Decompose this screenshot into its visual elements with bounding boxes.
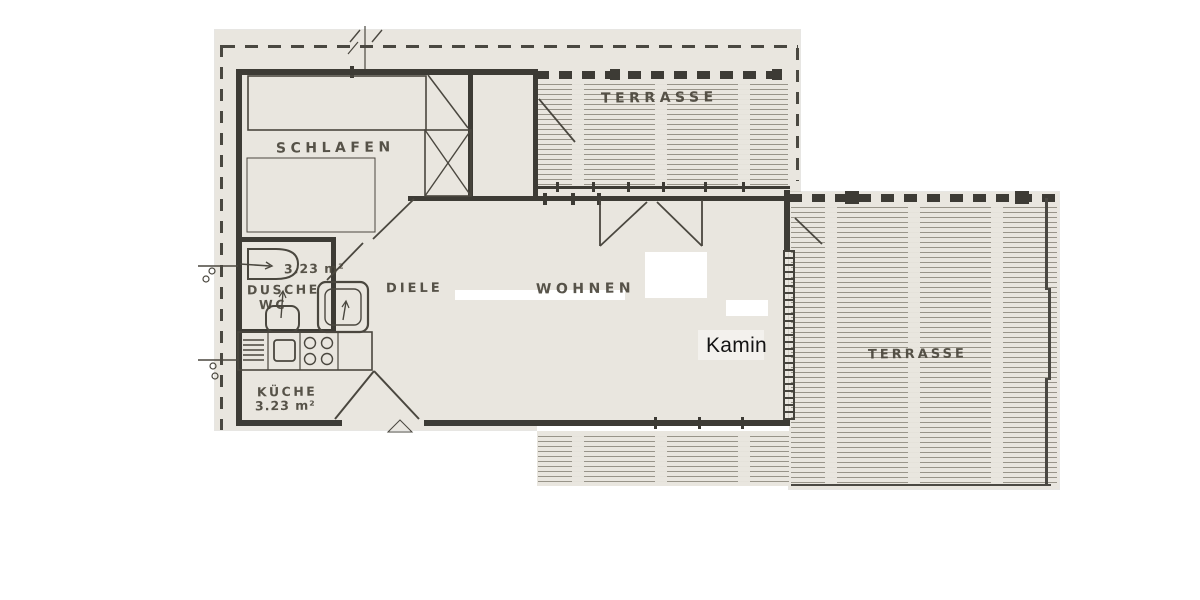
wall-window-tick [698,417,701,429]
terrace-bottom-hatch [538,432,789,484]
wall-bottom-right [424,420,790,426]
glass-wall-right [783,250,795,420]
room-label-wc: WC [259,297,287,312]
terrace-right-edge [1045,198,1048,290]
area-label-bath: 3.23 m² [284,261,345,277]
rail-tick [627,182,630,192]
scan-gap [537,426,789,431]
whiteout-patch [645,252,707,298]
rail-tick [742,182,745,192]
terrace-right-step-line [793,215,827,249]
railing-post [1015,191,1029,204]
sliding-window-icon [598,198,706,250]
whiteout-patch [726,300,768,316]
dimension-mark-top [340,24,390,70]
entrance-marker-icon [388,420,412,432]
dimension-mark-left-upper [196,258,242,284]
terrace-right-edge [1048,288,1051,380]
terrace-top-step-line [537,96,579,146]
terrace-right-edge [1045,378,1048,486]
rail-tick [592,182,595,192]
terrace-right-hatch [791,203,1057,486]
room-label-terrasse-top: TERRASSE [601,89,718,106]
terrace-top-railing [536,71,789,79]
area-label-kueche: 3.23 m² [255,398,316,414]
room-label-diele: DIELE [386,281,443,297]
floor-plan: SCHLAFEN TERRASSE 3.23 m² DUSCHE WC DIEL… [0,0,1200,600]
railing-post [610,69,620,80]
room-label-terrasse-right: TERRASSE [868,346,967,362]
boundary-dashed-right [796,48,799,181]
wall-bottom-left [236,420,342,426]
wall-window-tick [543,193,547,205]
wall-window-tick [654,417,657,429]
terrace-right-bottom-edge [791,484,1051,486]
room-label-schlafen: SCHLAFEN [276,139,395,156]
rail-tick [662,182,665,192]
rail-tick [556,182,559,192]
room-label-dusche: DUSCHE [247,282,320,298]
wall-window-tick [741,417,744,429]
closet-icon [424,73,474,199]
wall-window-tick [571,193,575,205]
drainboard-icon [243,340,264,360]
annotation-kamin: Kamin [706,334,767,358]
shower-icon [316,280,372,336]
stove-icon [305,338,333,365]
room-label-wohnen: WOHNEN [536,280,635,297]
boundary-dashed-top [222,45,798,48]
railing-post [845,191,859,204]
wall-bath-top [236,237,336,242]
rail-tick [704,182,707,192]
entrance-door-swing [333,358,423,436]
bedroom-door-swing [370,196,418,242]
sink-icon [274,340,295,361]
railing-post [772,69,782,80]
dimension-mark-left-lower [196,350,242,382]
